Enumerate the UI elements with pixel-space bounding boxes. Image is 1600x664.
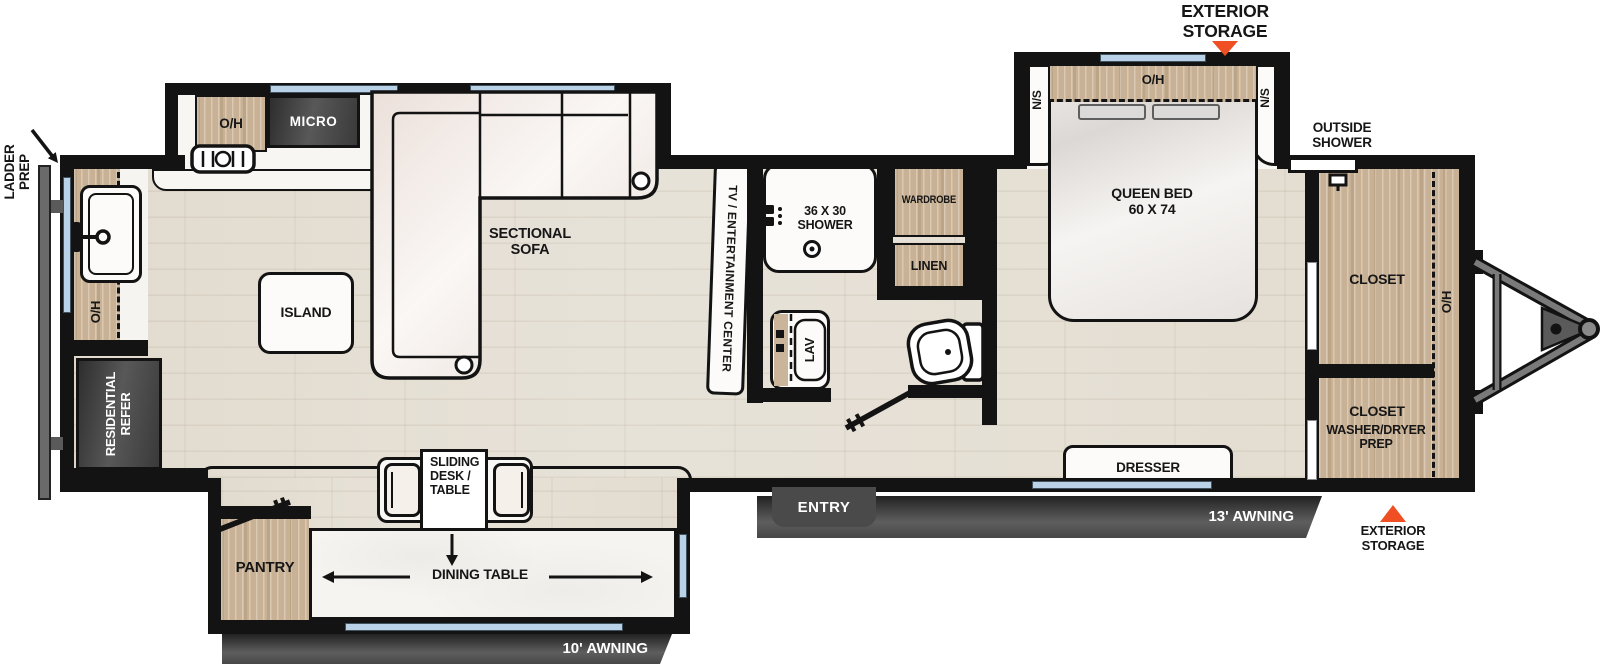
outside-shower-label: OUTSIDE SHOWER bbox=[1294, 120, 1390, 150]
dining-slide-left-wall bbox=[208, 478, 221, 634]
linen-label: LINEN bbox=[911, 259, 948, 273]
entry-door-tab: ENTRY bbox=[772, 487, 876, 527]
ladder-prep-arrow bbox=[32, 130, 58, 163]
awning-10: 10' AWNING bbox=[222, 634, 672, 664]
bath-door-stub-wall bbox=[908, 385, 988, 398]
kitchen-overhead-cabinet: O/H bbox=[195, 95, 267, 152]
queen-bed-label: QUEEN BED 60 X 74 bbox=[1082, 186, 1222, 224]
dining-slide-bottom-window bbox=[345, 623, 623, 631]
floorplan: O/H MICRO ISLAND SECTIONAL SOFA TV / ENT… bbox=[0, 0, 1600, 664]
dining-table-label: DINING TABLE bbox=[414, 567, 546, 587]
lav-label: LAV bbox=[803, 333, 817, 367]
kitchen-slide-left-wall bbox=[165, 83, 178, 169]
rear-window bbox=[63, 177, 71, 313]
kitchen-oh-label: O/H bbox=[219, 116, 242, 131]
shower: 36 X 30 SHOWER bbox=[763, 163, 877, 273]
ns-left-label: N/S bbox=[1031, 84, 1045, 116]
linen-cabinet: LINEN bbox=[893, 243, 965, 288]
lav-bottom-wall bbox=[761, 388, 831, 402]
awning-13-label: 13' AWNING bbox=[1208, 508, 1294, 525]
desk-chair-right bbox=[493, 463, 530, 517]
closet-door-track-upper bbox=[1307, 262, 1317, 350]
counter-refer-separator bbox=[74, 340, 148, 356]
ns-right-label: N/S bbox=[1259, 82, 1273, 114]
closet-lower-label: CLOSET bbox=[1318, 404, 1436, 420]
wardrobe: WARDROBE bbox=[893, 163, 965, 237]
bottom-wall-rear bbox=[60, 468, 208, 492]
dresser-label: DRESSER bbox=[1116, 460, 1180, 475]
shower-wardrobe-wall bbox=[877, 155, 893, 291]
wardrobe-right-wall bbox=[965, 155, 982, 300]
rear-oh-label: O/H bbox=[88, 294, 104, 330]
exterior-storage-marker-bottom bbox=[1380, 505, 1406, 522]
bedroom-slide-left-wall bbox=[1014, 52, 1027, 169]
closet-divider-wall bbox=[1319, 364, 1434, 378]
desk-chair-left bbox=[384, 463, 421, 517]
sliding-desk-label-box: SLIDING DESK / TABLE bbox=[420, 449, 488, 531]
sliding-desk-label: SLIDING DESK / TABLE bbox=[430, 456, 485, 497]
awning-10-label: 10' AWNING bbox=[562, 640, 648, 657]
wardrobe-label: WARDROBE bbox=[902, 194, 956, 206]
closet-upper-label: CLOSET bbox=[1318, 272, 1436, 288]
sofa-label: SECTIONAL SOFA bbox=[470, 226, 590, 262]
bedroom-oh-label: O/H bbox=[1118, 73, 1188, 88]
tv-entertainment-center: TV / ENTERTAINMENT CENTER bbox=[706, 162, 752, 395]
lavatory bbox=[770, 310, 830, 390]
ladder-prep-label: LADDER PREP bbox=[0, 132, 34, 212]
island-label: ISLAND bbox=[281, 305, 332, 321]
pillow-left bbox=[1078, 104, 1146, 120]
washer-dryer-label: WASHER/DRYER PREP bbox=[1300, 423, 1452, 451]
kitchen-sink-basin bbox=[88, 193, 134, 275]
bumper-mount-top bbox=[51, 200, 63, 213]
tv-wall bbox=[747, 155, 763, 403]
closet-oh-label: O/H bbox=[1439, 284, 1455, 320]
pantry-top-wall bbox=[215, 506, 311, 519]
linen-bottom-wall bbox=[877, 286, 982, 300]
front-wall bbox=[1459, 155, 1475, 492]
bedroom-slide-right-wall bbox=[1277, 52, 1290, 169]
kitchen-island: ISLAND bbox=[258, 272, 354, 354]
bumper-mount-bottom bbox=[51, 437, 63, 450]
kitchen-slide-window-2 bbox=[470, 85, 615, 93]
entry-label: ENTRY bbox=[798, 499, 851, 516]
kitchen-slide-window-1 bbox=[270, 85, 398, 93]
exterior-storage-top-label: EXTERIOR STORAGE bbox=[1140, 2, 1310, 41]
rear-bumper bbox=[38, 165, 51, 500]
outside-shower-fixture bbox=[1288, 157, 1358, 173]
pillow-right bbox=[1152, 104, 1220, 120]
tv-label: TV / ENTERTAINMENT CENTER bbox=[719, 185, 739, 373]
exterior-storage-bottom-label: EXTERIOR STORAGE bbox=[1325, 524, 1461, 553]
pantry: PANTRY bbox=[221, 514, 309, 622]
dresser-window bbox=[1032, 481, 1212, 489]
dining-slide-side-window bbox=[679, 534, 687, 598]
hitch-a-frame bbox=[1473, 250, 1598, 414]
shower-label: 36 X 30 SHOWER bbox=[787, 204, 852, 232]
microwave: MICRO bbox=[267, 95, 360, 148]
refer-label: RESIDENTIAL REFER bbox=[103, 362, 135, 466]
bedroom-slide-window bbox=[1100, 54, 1206, 62]
kitchen-counter-strip bbox=[152, 169, 378, 191]
pantry-label: PANTRY bbox=[236, 560, 295, 577]
microwave-label: MICRO bbox=[290, 114, 338, 129]
